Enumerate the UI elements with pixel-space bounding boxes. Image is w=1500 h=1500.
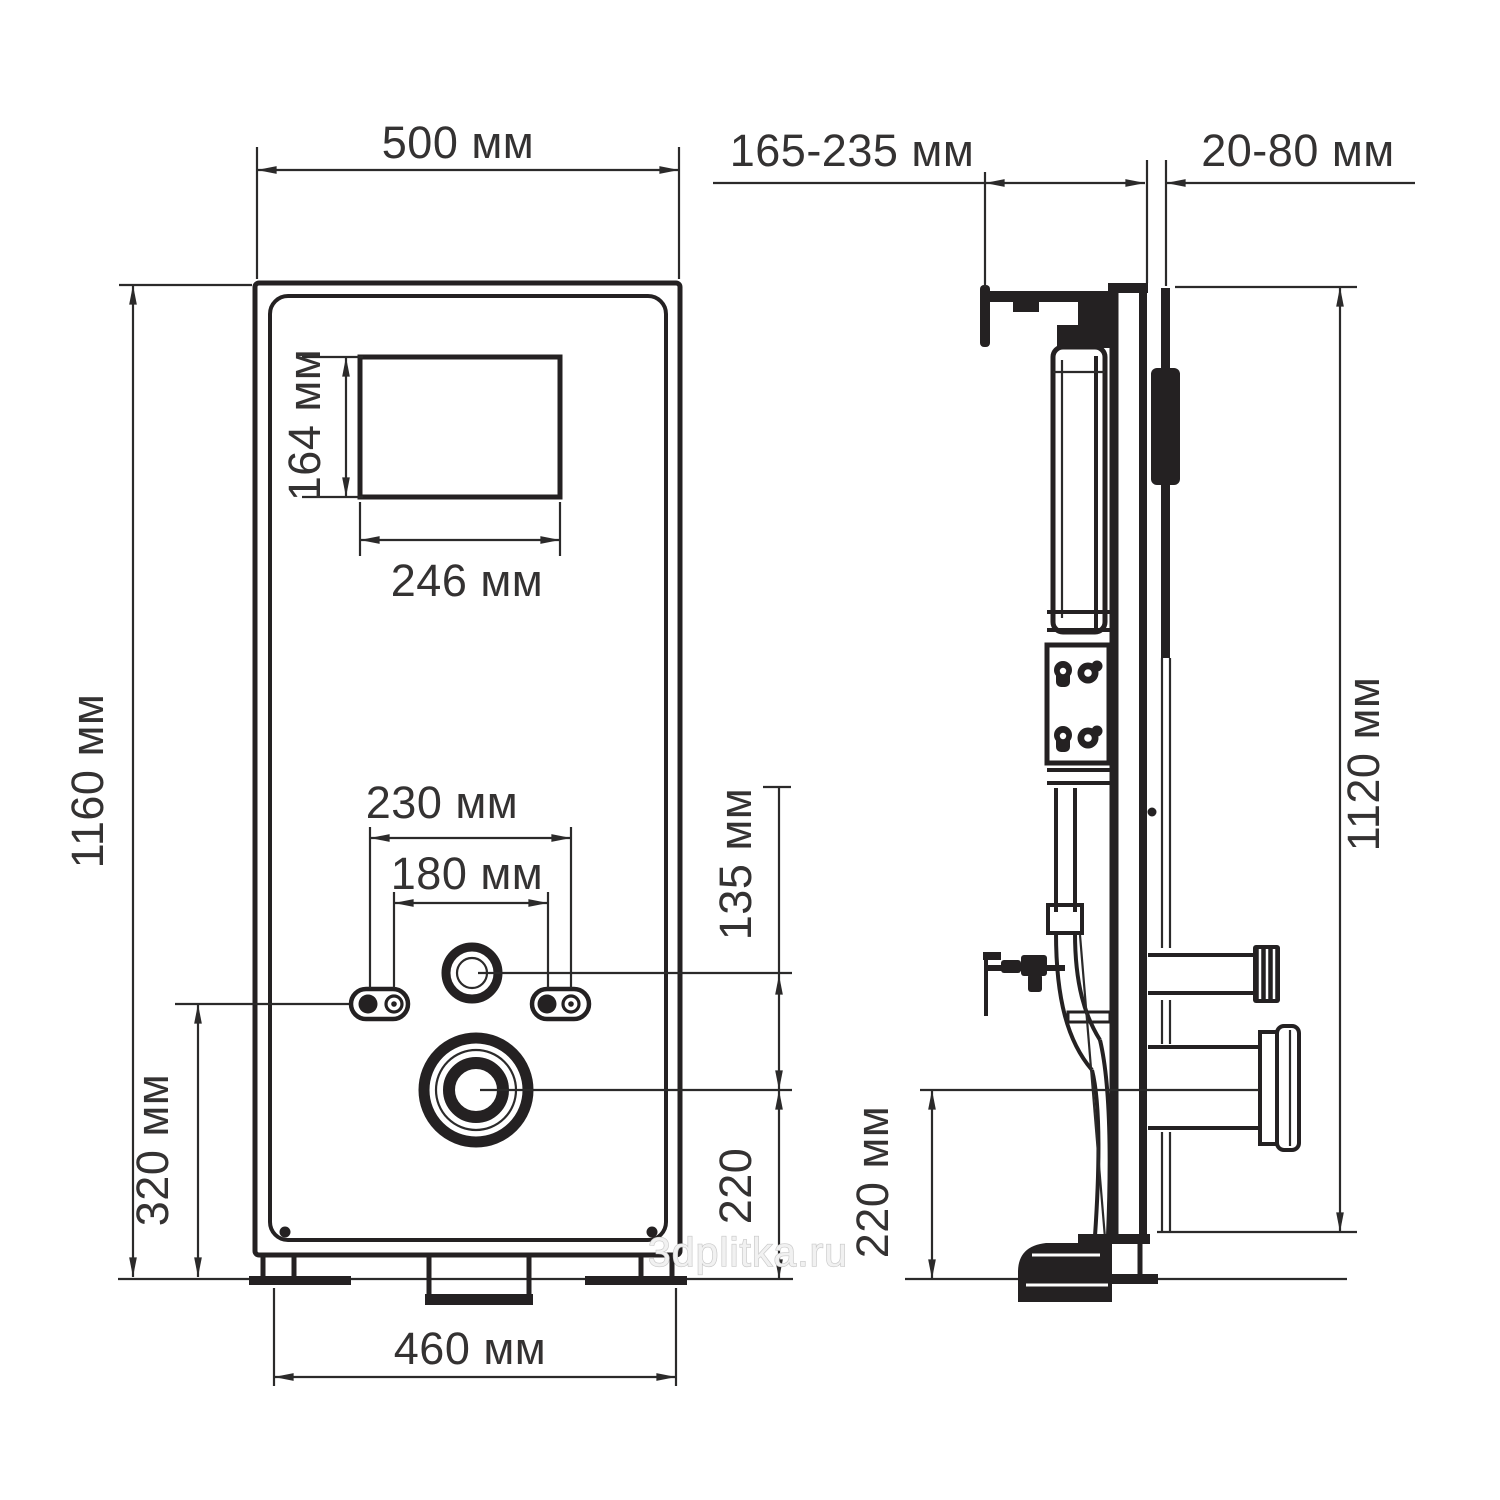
cistern-tank — [1047, 302, 1110, 632]
label-outlet-to-floor-side: 220 мм — [847, 1106, 898, 1258]
label-studs-inner: 180 мм — [391, 848, 543, 899]
dim-front-width: 500 мм — [257, 117, 679, 279]
water-supply-pipe — [1148, 945, 1280, 1003]
label-window-width: 246 мм — [391, 555, 543, 606]
label-side-height: 1120 мм — [1338, 677, 1389, 852]
keyhole-slot-lower — [1054, 726, 1103, 753]
panel-screw-left — [280, 1227, 291, 1238]
dim-wall-finish: 20-80 мм — [1147, 125, 1415, 286]
inspection-window — [360, 357, 560, 497]
keyhole-slot-upper — [1054, 661, 1103, 688]
technical-drawing-page: 500 мм 1160 мм 164 мм 246 мм 230 мм — [0, 0, 1500, 1500]
label-inlet-to-outlet: 135 мм — [710, 788, 761, 940]
frame-profile — [1108, 283, 1148, 1237]
mounting-studs — [175, 989, 589, 1019]
label-front-width: 500 мм — [382, 117, 534, 168]
label-front-height: 1160 мм — [62, 694, 113, 869]
side-view: 165-235 мм 20-80 мм 1120 мм 220 мм — [713, 125, 1415, 1302]
label-studs-to-floor: 320 мм — [127, 1074, 178, 1226]
outlet-elbow — [1018, 1243, 1112, 1302]
dim-window-width: 246 мм — [360, 502, 560, 606]
frame-feet — [249, 1255, 687, 1285]
label-depth-adjust: 165-235 мм — [730, 125, 975, 176]
dim-studs-to-floor: 320 мм — [127, 1004, 198, 1277]
watermark-text: 3dplitka.ru — [648, 1229, 848, 1275]
dim-window-height: 164 мм — [279, 349, 363, 501]
dim-studs-inner: 180 мм — [391, 848, 548, 988]
label-window-height: 164 мм — [279, 349, 330, 501]
waste-outlet-pipe — [1148, 1026, 1299, 1150]
label-outlet-to-floor-front: 220 — [710, 1148, 761, 1225]
shutoff-valve — [983, 952, 1065, 1016]
front-view: 500 мм 1160 мм 164 мм 246 мм 230 мм — [62, 117, 793, 1386]
mounting-plate — [1047, 645, 1110, 783]
installation-frame-diagram: 500 мм 1160 мм 164 мм 246 мм 230 мм — [0, 0, 1500, 1500]
flush-panel — [1151, 368, 1180, 485]
label-feet-span: 460 мм — [394, 1323, 546, 1374]
dim-depth-adjust: 165-235 мм — [713, 125, 1145, 287]
label-studs-outer: 230 мм — [366, 777, 518, 828]
label-wall-finish: 20-80 мм — [1201, 125, 1394, 176]
